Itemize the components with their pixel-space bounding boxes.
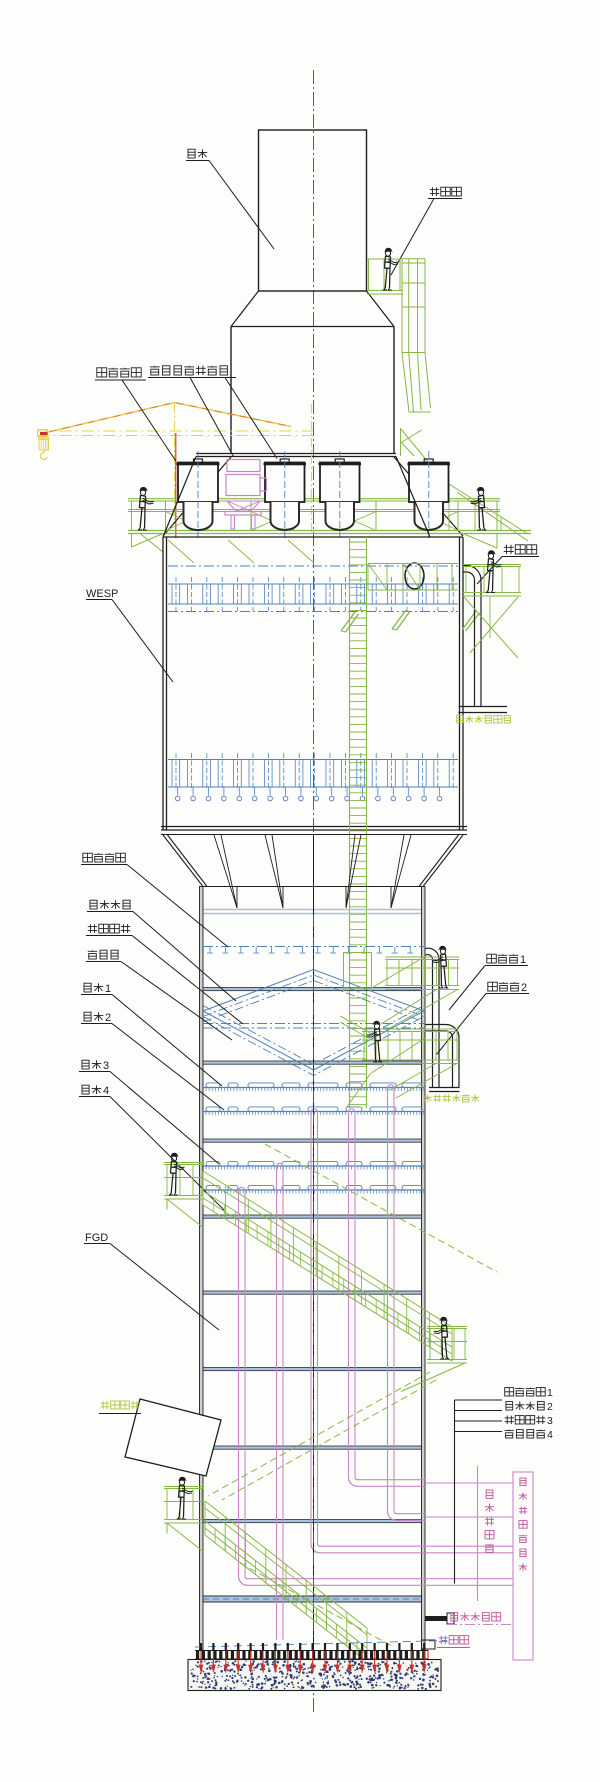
svg-text:3: 3	[103, 1060, 109, 1072]
svg-text:3: 3	[547, 1415, 553, 1427]
svg-text:1: 1	[547, 1387, 553, 1399]
svg-text:WESP: WESP	[86, 588, 118, 600]
svg-text:4: 4	[103, 1085, 109, 1097]
svg-text:2: 2	[547, 1401, 553, 1413]
svg-text:2: 2	[521, 982, 527, 994]
svg-text:4: 4	[547, 1429, 553, 1441]
svg-text:2: 2	[105, 1012, 111, 1024]
svg-text:1: 1	[520, 954, 526, 966]
svg-text:FGD: FGD	[85, 1232, 108, 1244]
svg-text:1: 1	[105, 983, 111, 995]
